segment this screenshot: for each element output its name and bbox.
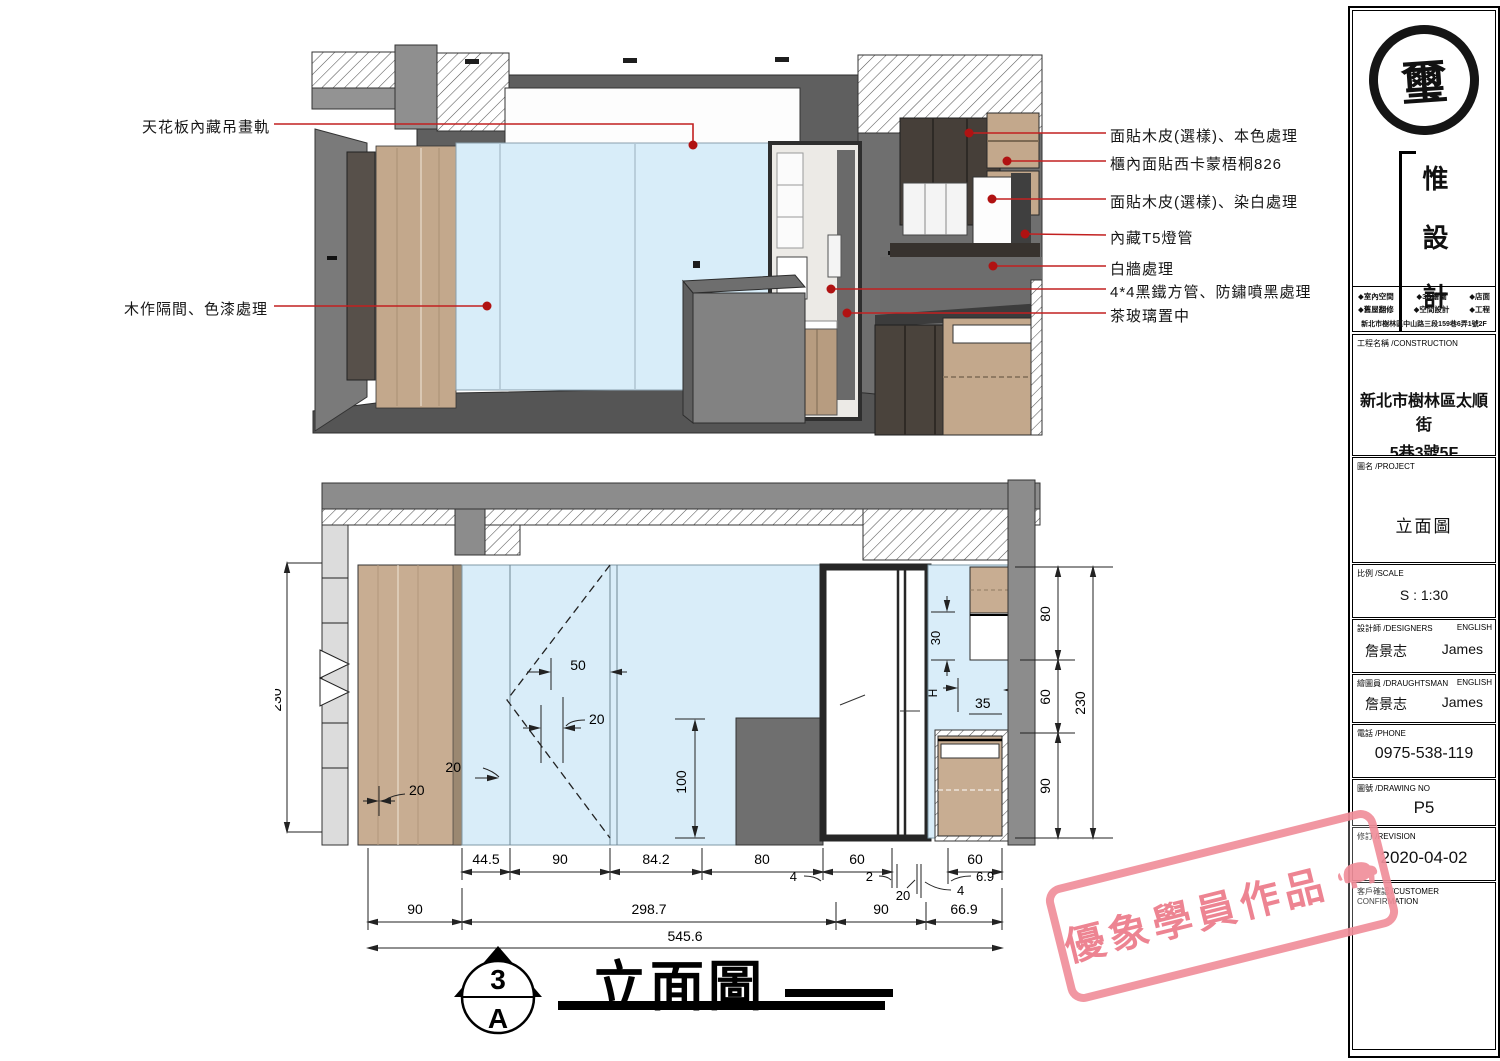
designer-name: 詹景志 — [1365, 641, 1407, 661]
dim-298-7: 298.7 — [631, 901, 666, 917]
phone-number: 0975-538-119 — [1353, 745, 1495, 763]
ceiling-recess — [505, 88, 800, 150]
draughtsman-name: 詹景志 — [1365, 694, 1407, 714]
white-cabinet-row — [903, 183, 967, 235]
callout-20: 20 — [896, 888, 910, 903]
dim-66-9: 66.9 — [950, 901, 977, 917]
kitchen-tiles — [777, 153, 803, 248]
scale-section: 比例 /SCALE S : 1:30 — [1352, 564, 1496, 618]
dim-H: H — [926, 689, 940, 698]
ceiling-light — [623, 58, 637, 63]
scale-value: S : 1:30 — [1353, 587, 1495, 603]
dim-90a: 90 — [552, 851, 568, 867]
annotation-ceiling-rail: 天花板內藏吊畫軌 — [142, 116, 270, 137]
ceiling-light — [465, 59, 479, 64]
drawer-slot — [953, 325, 1031, 343]
drawing-sheet: 50 20 20 20 100 30 — [0, 0, 1500, 1061]
drawer-gap — [941, 744, 999, 758]
annotation-tea-glass: 茶玻璃置中 — [1110, 305, 1190, 326]
dim-right-90: 90 — [1037, 778, 1053, 794]
title-underline — [558, 1001, 885, 1010]
symbol-letter: A — [488, 1003, 508, 1034]
dim-30: 30 — [928, 631, 943, 645]
site-address-line1: 新北市樹林區太順街 — [1353, 387, 1495, 435]
dim-right-230: 230 — [1072, 691, 1088, 715]
boiler — [828, 235, 841, 277]
black-frame-door — [823, 567, 928, 838]
callout-6-9: 6.9 — [976, 869, 994, 884]
callout-4b: 4 — [957, 883, 964, 898]
ceiling-light — [775, 57, 789, 62]
dim-60b: 60 — [967, 851, 983, 867]
dim-60a: 60 — [849, 851, 865, 867]
right-upper-cabinet — [970, 567, 1008, 613]
right-wall-section — [1008, 480, 1035, 845]
elev-wood-door — [358, 565, 462, 845]
dim-50: 50 — [570, 657, 586, 673]
beam-pillar — [395, 45, 437, 129]
dim-35: 35 — [975, 695, 991, 711]
draughtsman-section: 繪圖員 /DRAUGHTSMAN ENGLISH 詹景志 James — [1352, 674, 1496, 723]
designers-section: 設計師 /DESIGNERS ENGLISH 詹景志 James — [1352, 619, 1496, 673]
door-handle — [327, 256, 337, 260]
construction-section: 工程名稱 /CONSTRUCTION 新北市樹林區太順街 5巷3號5F — [1352, 334, 1496, 456]
title-underline-2 — [785, 989, 893, 997]
elephant-icon — [1329, 843, 1386, 903]
island-body — [693, 293, 805, 423]
dark-door — [347, 152, 375, 380]
elevation-drawing: 50 20 20 20 100 30 — [275, 468, 1135, 968]
section-symbol: 3 A — [452, 944, 544, 1040]
callout-4a: 4 — [790, 869, 797, 884]
annotation-t5-light: 內藏T5燈管 — [1110, 227, 1194, 248]
annotation-wood-partition: 木作隔間、色漆處理 — [124, 298, 268, 319]
site-address-line2: 5巷3號5F — [1353, 439, 1495, 456]
project-name: 立面圖 — [1353, 512, 1495, 537]
dim-90-right: 90 — [873, 901, 889, 917]
ceiling-hatch-left — [312, 52, 400, 88]
project-section: 圖名 /PROJECT 立面圖 — [1352, 457, 1496, 563]
annotation-iron-tube: 4*4黑鐵方管、防鏽噴黑處理 — [1110, 281, 1312, 302]
services: ◆室內空間 ◆3D繪圖 ◆店面 ◆舊屋翻修 ◆空間設計 ◆工程 新北市樹林區中山… — [1353, 286, 1495, 329]
dim-84-2: 84.2 — [642, 851, 669, 867]
dim-right-80: 80 — [1037, 606, 1053, 622]
dim-row1 — [462, 848, 1002, 898]
ceiling-slab — [322, 483, 1040, 509]
dim-20: 20 — [409, 782, 425, 798]
logo-section: 璽 惟 設 計 ◆室內空間 ◆3D繪圖 ◆店面 ◆舊屋翻修 ◆空間設計 — [1352, 10, 1496, 332]
callout-2: 2 — [866, 869, 873, 884]
draughtsman-en-name: James — [1442, 694, 1483, 714]
annotation-veneer-whitewash: 面貼木皮(選樣)、染白處理 — [1110, 191, 1298, 212]
dim-44-5: 44.5 — [472, 851, 499, 867]
company-address: 新北市樹林區中山路三段159巷6弄1號2F — [1353, 319, 1495, 329]
beam-drop — [455, 509, 485, 555]
dim-90-left: 90 — [407, 901, 423, 917]
drawing-number: P5 — [1353, 798, 1495, 818]
company-seal-logo: 璽 — [1365, 21, 1482, 138]
annotation-cabinet-lining: 櫃內面貼西卡蒙梧桐826 — [1110, 153, 1282, 174]
perspective-view — [305, 25, 1045, 437]
right-upper-open — [970, 613, 1008, 660]
symbol-number: 3 — [490, 964, 506, 995]
dim-80: 80 — [754, 851, 770, 867]
dim-100: 100 — [673, 770, 689, 794]
phone-section: 電話 /PHONE 0975-538-119 — [1352, 724, 1496, 778]
dim-left-230: 230 — [275, 688, 284, 712]
black-shelf — [890, 243, 1040, 257]
designer-en-name: James — [1442, 641, 1483, 661]
dim-20: 20 — [589, 711, 605, 727]
dim-20: 20 — [445, 759, 461, 775]
dim-right-60: 60 — [1037, 689, 1053, 705]
low-partition — [736, 718, 823, 845]
wood-door — [376, 146, 456, 408]
annotation-veneer-natural: 面貼木皮(選樣)、本色處理 — [1110, 125, 1298, 146]
annotation-white-wall: 白牆處理 — [1110, 258, 1174, 279]
